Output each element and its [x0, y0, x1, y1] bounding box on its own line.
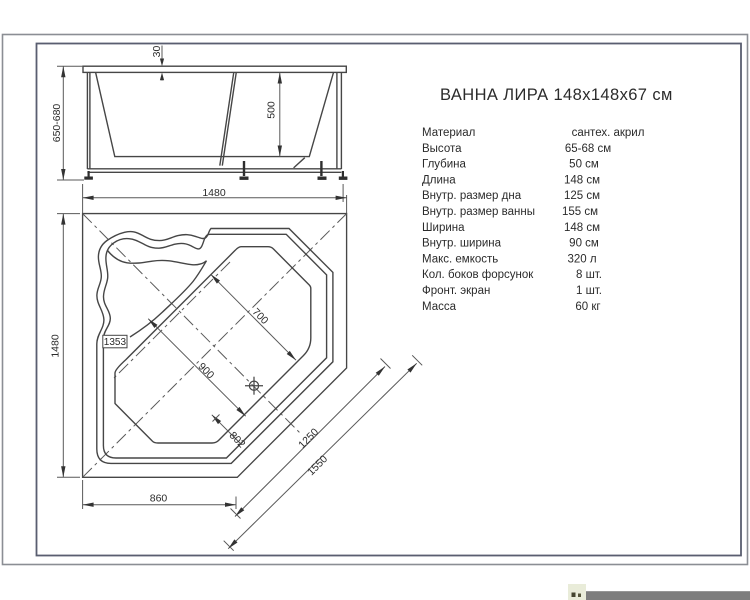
svg-text:Глубина: Глубина	[422, 159, 467, 171]
svg-text:60 кг: 60 кг	[575, 301, 600, 313]
svg-text:1 шт.: 1 шт.	[576, 285, 602, 297]
svg-text:8 шт.: 8 шт.	[576, 269, 602, 281]
svg-text:Кол. боков форсунок: Кол. боков форсунок	[422, 269, 534, 281]
svg-text:Макс. емкость: Макс. емкость	[422, 253, 498, 265]
svg-text:860: 860	[150, 493, 168, 505]
svg-text:65-68 см: 65-68 см	[565, 143, 611, 155]
svg-text:30: 30	[151, 46, 163, 58]
svg-text:Масса: Масса	[422, 301, 457, 313]
svg-text:1550: 1550	[305, 453, 330, 478]
svg-text:Внутр. ширина: Внутр. ширина	[422, 238, 502, 250]
svg-text:сантех. акрил: сантех. акрил	[572, 127, 645, 139]
svg-text:700: 700	[250, 306, 271, 327]
svg-text:1353: 1353	[104, 337, 127, 348]
svg-text:148 см: 148 см	[564, 222, 600, 234]
svg-text:320 л: 320 л	[567, 253, 596, 265]
svg-text:90 см: 90 см	[569, 238, 599, 250]
svg-text:ВАННА ЛИРА 148х148х67 см: ВАННА ЛИРА 148х148х67 см	[440, 86, 673, 104]
svg-text:500: 500	[266, 101, 278, 119]
svg-text:1480: 1480	[50, 334, 62, 358]
svg-text:Фронт. экран: Фронт. экран	[422, 285, 490, 297]
svg-text:900: 900	[195, 361, 216, 382]
svg-text:125 см: 125 см	[564, 190, 600, 202]
svg-text:Внутр. размер ванны: Внутр. размер ванны	[422, 206, 535, 218]
svg-text:1250: 1250	[296, 426, 321, 451]
svg-text:Ширина: Ширина	[422, 222, 465, 234]
svg-text:Материал: Материал	[422, 127, 475, 139]
svg-text:650-680: 650-680	[51, 104, 63, 143]
svg-text:Внутр. размер дна: Внутр. размер дна	[422, 190, 522, 202]
svg-text:155 см: 155 см	[562, 206, 598, 218]
svg-text:50 см: 50 см	[569, 159, 599, 171]
svg-text:1480: 1480	[202, 187, 226, 199]
svg-text:Длина: Длина	[422, 174, 456, 186]
svg-text:148 см: 148 см	[564, 174, 600, 186]
svg-text:Высота: Высота	[422, 143, 462, 155]
